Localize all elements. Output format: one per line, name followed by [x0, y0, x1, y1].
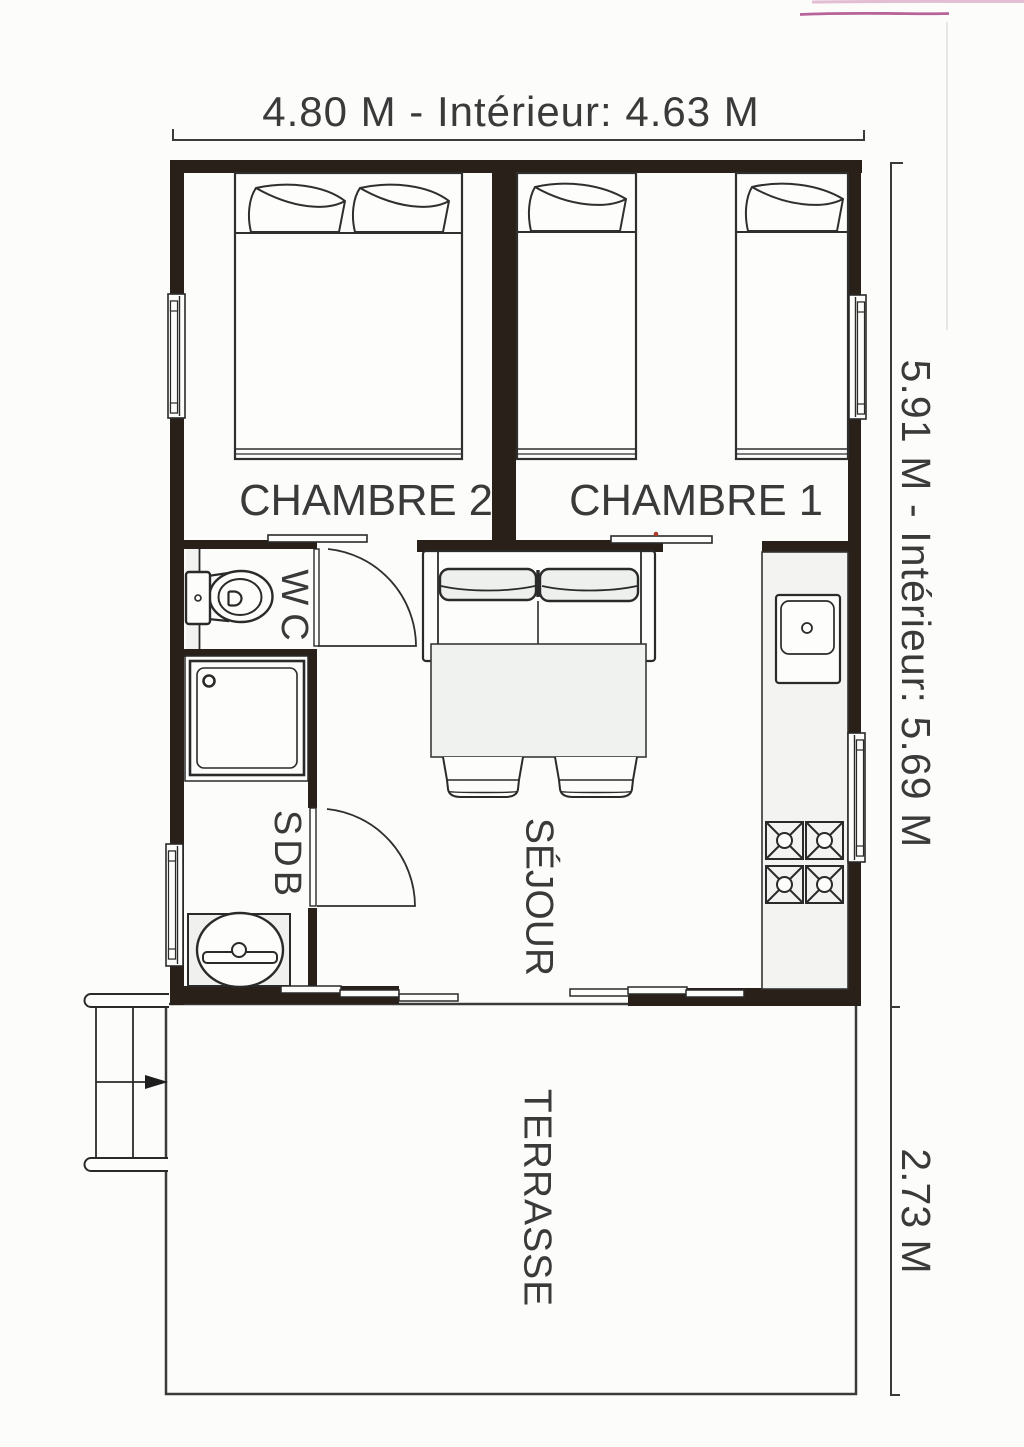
svg-text:WC: WC — [273, 569, 315, 648]
svg-text:CHAMBRE 2: CHAMBRE 2 — [239, 477, 493, 525]
svg-text:5.91 M - Intérieur: 5.69 M: 5.91 M - Intérieur: 5.69 M — [893, 360, 939, 849]
svg-text:SDB: SDB — [266, 810, 308, 900]
svg-text:SÉJOUR: SÉJOUR — [518, 818, 561, 976]
svg-text:TERRASSE: TERRASSE — [516, 1089, 559, 1307]
svg-text:2.73 M: 2.73 M — [893, 1148, 939, 1273]
svg-text:CHAMBRE 1: CHAMBRE 1 — [569, 477, 823, 525]
svg-text:4.80 M - Intérieur: 4.63 M: 4.80 M - Intérieur: 4.63 M — [262, 88, 760, 135]
